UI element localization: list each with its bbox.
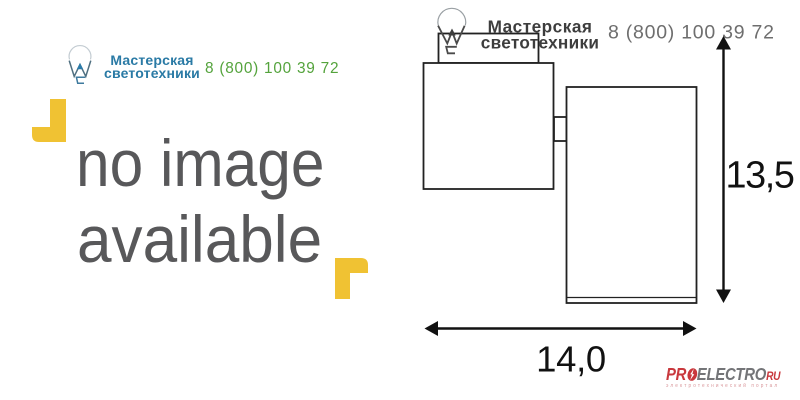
svg-text:14,0: 14,0 xyxy=(536,339,606,380)
svg-text:8 (800) 100 39 72: 8 (800) 100 39 72 xyxy=(608,22,775,44)
svg-text:13,5: 13,5 xyxy=(726,155,794,197)
svg-text:светотехники: светотехники xyxy=(481,32,600,52)
